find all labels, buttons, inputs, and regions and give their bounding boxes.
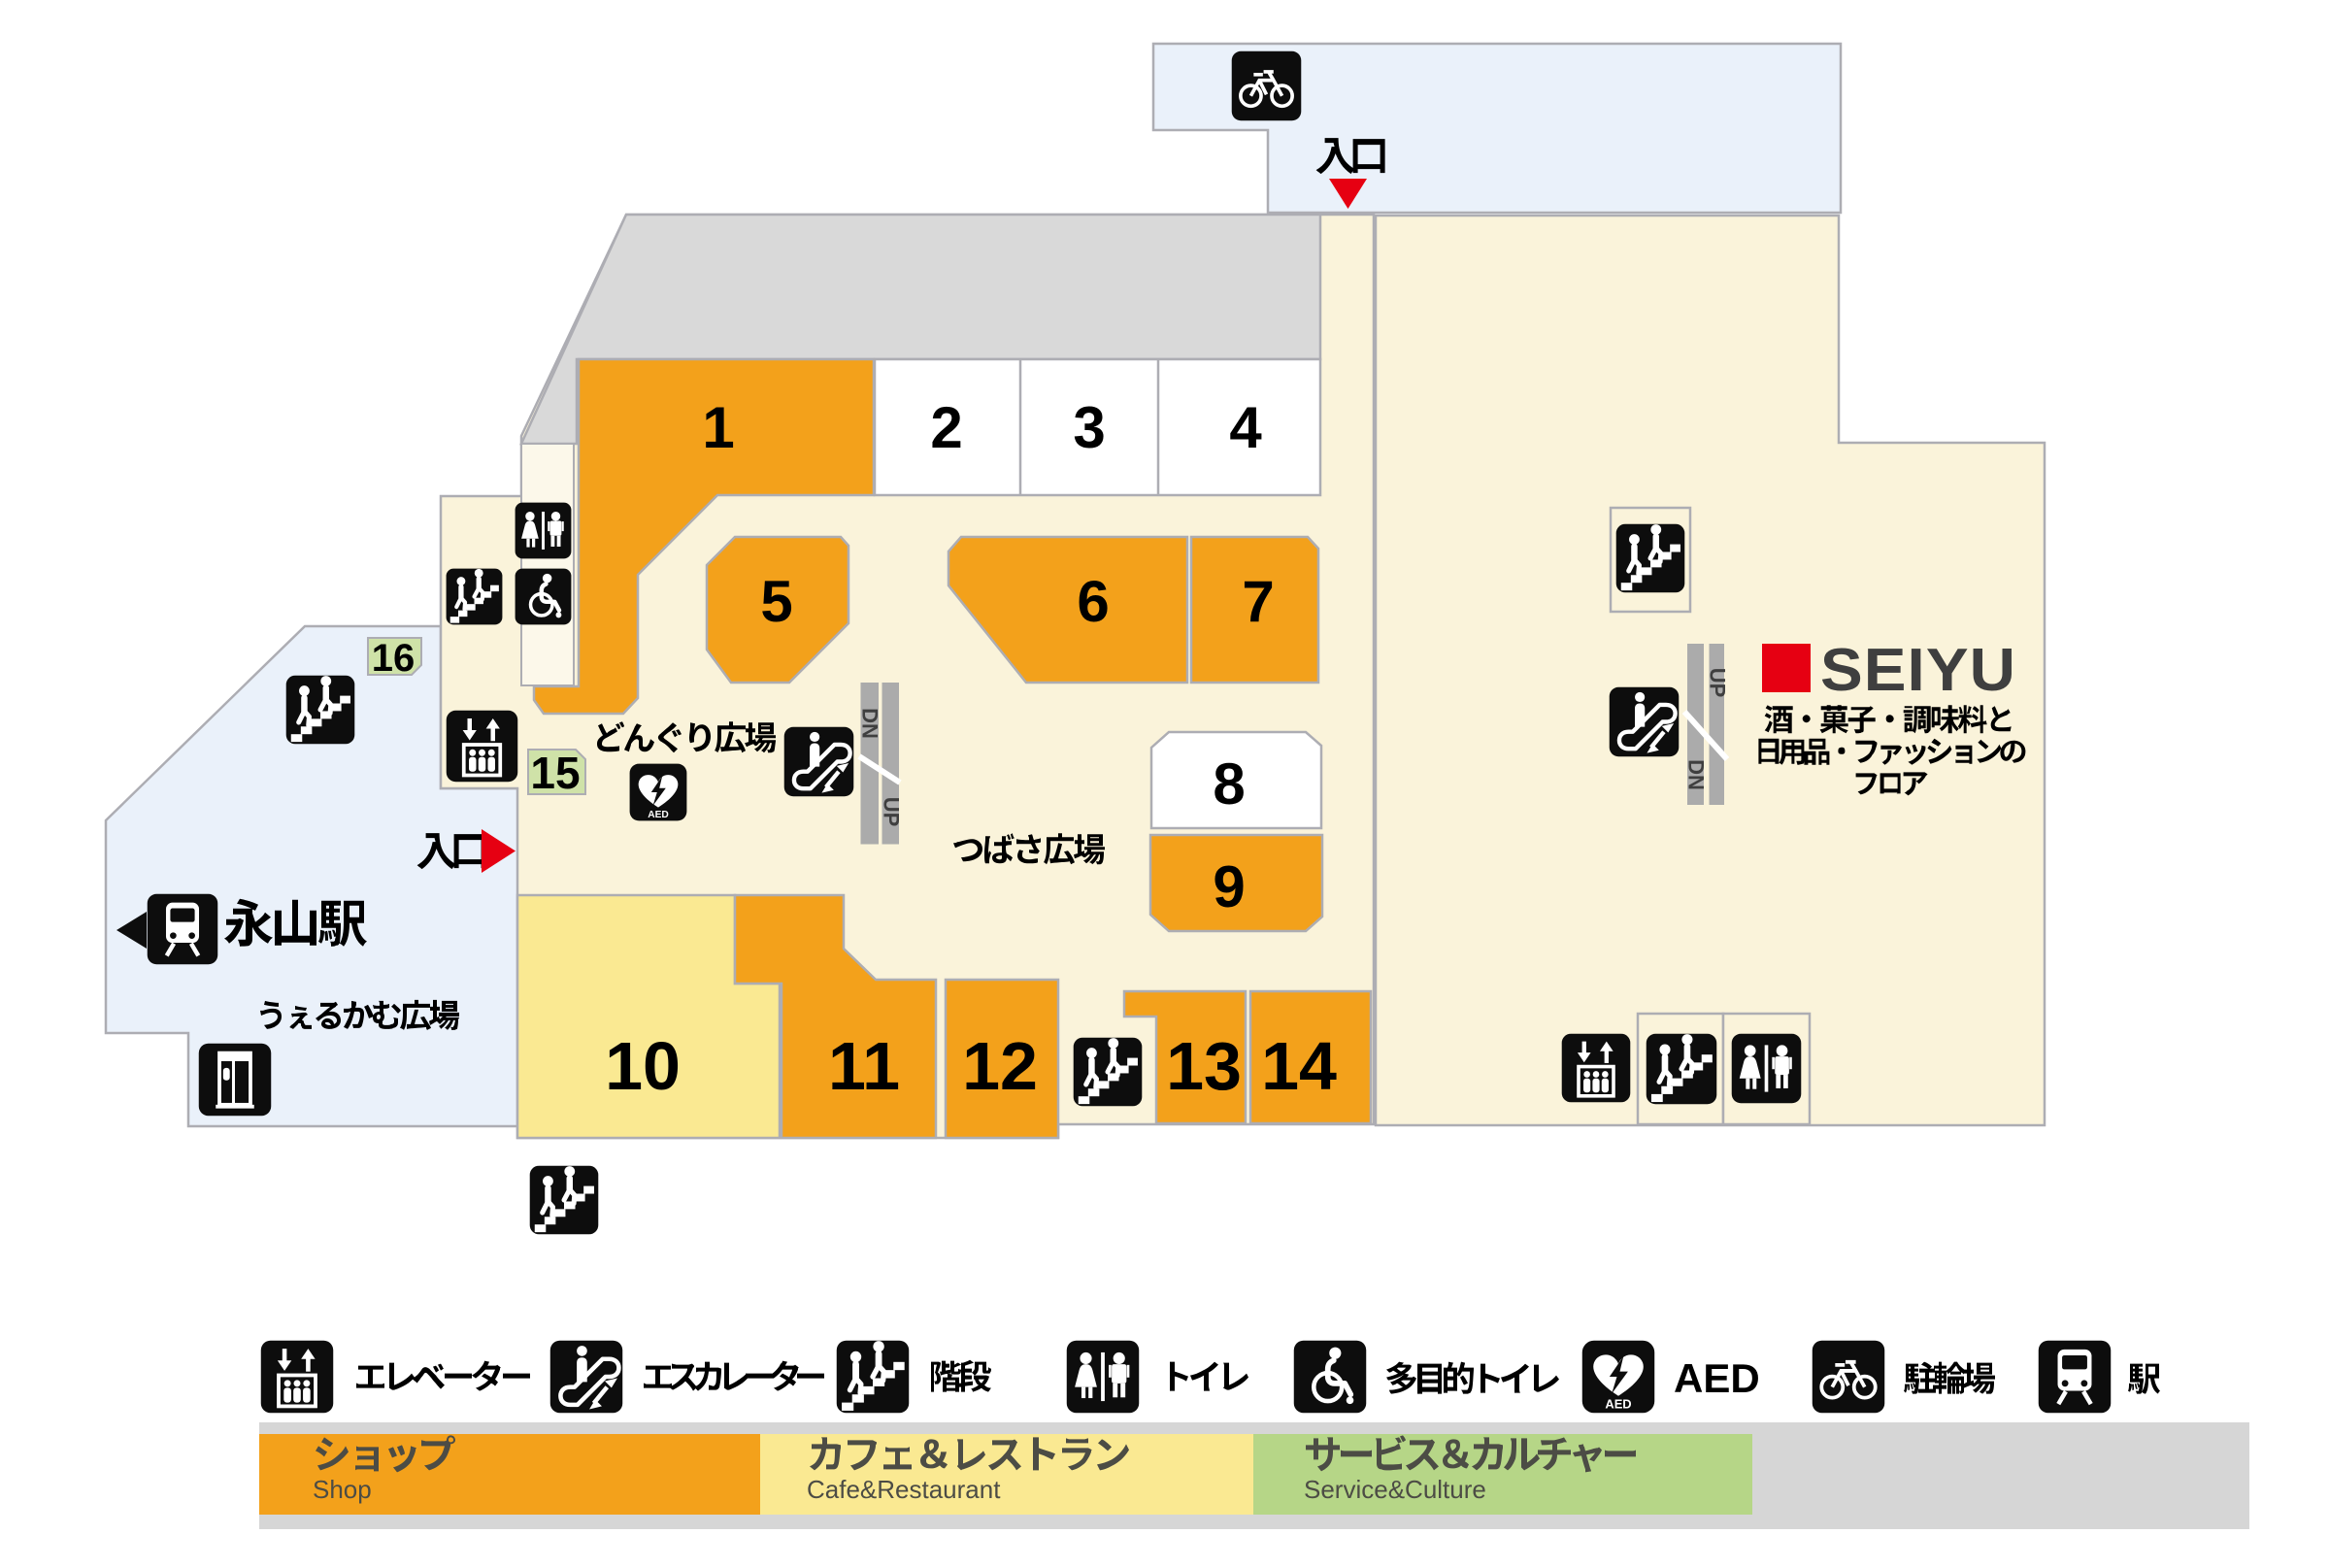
- svg-text:3: 3: [1073, 395, 1105, 460]
- svg-text:9: 9: [1213, 854, 1245, 919]
- svg-text:13: 13: [1166, 1028, 1242, 1104]
- svg-text:5: 5: [760, 569, 792, 634]
- svg-text:4: 4: [1229, 395, 1262, 460]
- svg-text:7: 7: [1242, 569, 1274, 634]
- svg-text:15: 15: [530, 748, 580, 798]
- svg-text:10: 10: [605, 1028, 681, 1104]
- svg-text:UP: UP: [1705, 668, 1729, 698]
- svg-text:6: 6: [1077, 569, 1109, 634]
- svg-text:UP: UP: [879, 797, 903, 827]
- svg-text:1: 1: [702, 395, 734, 460]
- svg-text:Cafe&Restaurant: Cafe&Restaurant: [807, 1475, 1001, 1504]
- svg-text:8: 8: [1213, 751, 1245, 817]
- svg-text:16: 16: [372, 637, 416, 680]
- svg-text:2: 2: [930, 395, 962, 460]
- svg-text:DN: DN: [858, 708, 882, 739]
- svg-text:Shop: Shop: [313, 1475, 372, 1504]
- svg-text:11: 11: [828, 1028, 900, 1104]
- svg-text:SEIYU: SEIYU: [1820, 637, 2016, 704]
- svg-text:AED: AED: [1674, 1355, 1760, 1401]
- svg-text:14: 14: [1261, 1028, 1337, 1104]
- svg-text:Service&Culture: Service&Culture: [1304, 1475, 1486, 1504]
- svg-text:DN: DN: [1684, 759, 1709, 790]
- svg-text:12: 12: [962, 1028, 1038, 1104]
